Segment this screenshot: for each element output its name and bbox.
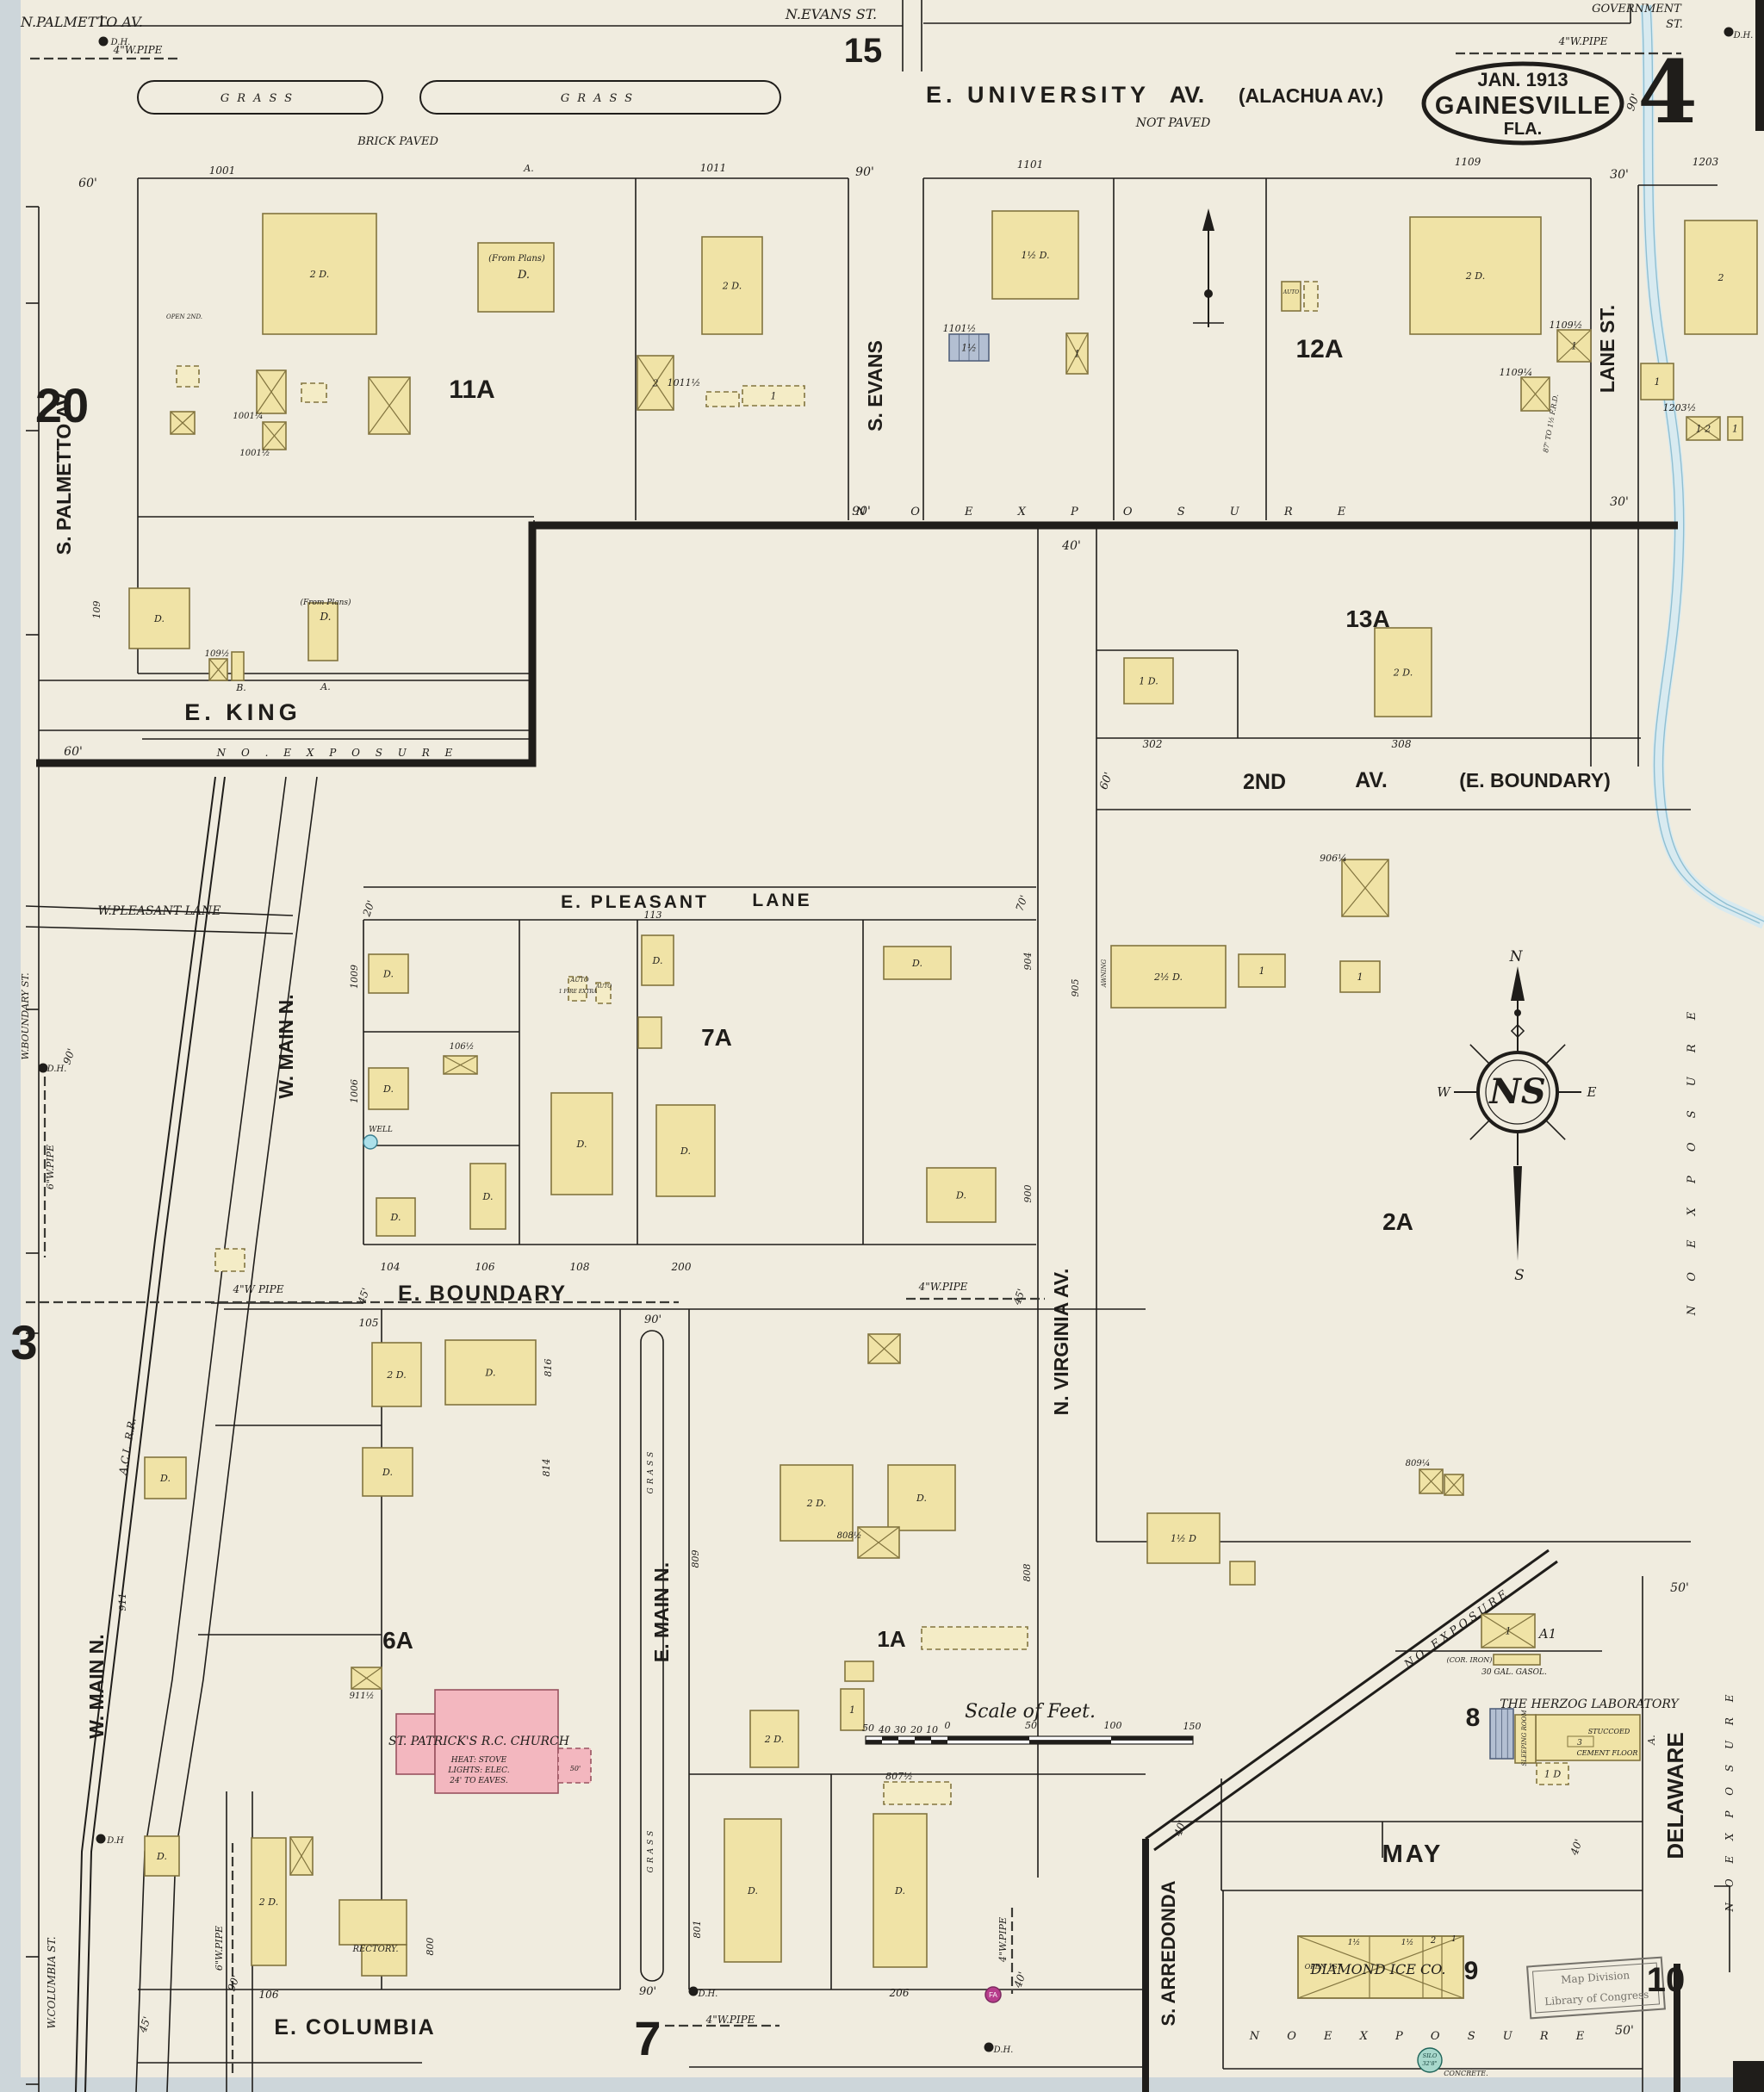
- dwelling-308: 2 D.: [1375, 628, 1432, 717]
- building-label: D.: [382, 1083, 394, 1095]
- pipe-4w-nvirginia: 4"W.PIPE: [918, 1281, 968, 1293]
- address-109: 109: [91, 601, 102, 619]
- block-6a: 6A: [382, 1627, 413, 1654]
- street-n-evans-st: N.EVANS ST.: [785, 6, 877, 22]
- note-heat-stove: HEAT: STOVE: [450, 1756, 507, 1765]
- address-1109: 1109: [1455, 156, 1481, 168]
- note-ice-1h-b: 1½: [1401, 1938, 1413, 1947]
- stable-906q: [1342, 860, 1388, 916]
- text-shape: FA: [989, 1991, 997, 1999]
- building-label: 1: [1655, 376, 1661, 388]
- note-auto-1: AUTO: [569, 977, 589, 984]
- building-label: 1 D.: [1139, 676, 1158, 687]
- address-1001h: 1001½: [239, 449, 270, 458]
- address-a-block8: A.: [1646, 1735, 1657, 1745]
- text-shape: NS: [1488, 1071, 1545, 1112]
- scale-tick-30: 30: [894, 1724, 906, 1735]
- dwelling-from-plans-1: [478, 243, 554, 312]
- building-st-patricks-church: ST. PATRICK'S R.C. CHURCH: [388, 1735, 570, 1748]
- dim-30-1: 30': [1610, 168, 1629, 182]
- street-w-main-n-upper: W. MAIN N.: [275, 994, 297, 1098]
- scale-tick-40: 40: [878, 1724, 891, 1735]
- pipe-4w-vertical: 4"W.PIPE: [997, 1917, 1009, 1963]
- pipe-4w-ecolumbia: 4"W.PIPE: [705, 2014, 755, 2026]
- note-24-to-eaves: 24' TO EAVES.: [449, 1777, 508, 1785]
- note-fire-extra: 1 FIRE EXTRA: [559, 989, 598, 995]
- outbuilding: 1: [1641, 363, 1674, 400]
- address-1101h: 1101½: [943, 323, 977, 334]
- outbuilding: 1: [1340, 961, 1380, 992]
- building-label: 1: [1506, 1626, 1512, 1637]
- note-ice-1h-a: 1½: [1348, 1938, 1360, 1947]
- dwelling-911: D.: [145, 1457, 186, 1499]
- note-no-exposure-eking: N O . E X P O S U R E: [216, 747, 459, 759]
- hydrant-dh-4: D.H.: [993, 2045, 1014, 2055]
- scale-tick-50r: 50: [1025, 1720, 1037, 1731]
- dwelling: 2 D.: [252, 1838, 286, 1965]
- building-label: D.: [747, 1885, 758, 1896]
- rect-shape: [915, 1736, 931, 1741]
- street-alachua-av: (ALACHUA AV.): [1239, 84, 1383, 107]
- dwelling-904: D.: [884, 947, 951, 979]
- address-1009: 1009: [349, 965, 360, 989]
- address-a-top: A.: [523, 163, 533, 174]
- rect-shape: [882, 1736, 898, 1741]
- adjacent-sheet-10: 10: [1647, 1961, 1686, 1999]
- dwelling-1006: D.: [369, 1068, 408, 1109]
- note-stuccoed: STUCCOED: [1588, 1728, 1630, 1735]
- shed-807h: [884, 1782, 951, 1804]
- address-200: 200: [671, 1261, 692, 1273]
- hydrant-dh-1: D.H.: [110, 38, 131, 47]
- stable: [290, 1837, 313, 1875]
- street-e-king: E. KING: [184, 699, 301, 725]
- block-2a: 2A: [1382, 1208, 1413, 1235]
- building-label: 1: [1259, 965, 1265, 977]
- note-herzog-3: 3: [1577, 1739, 1582, 1747]
- note-brick-paved: BRICK PAVED: [357, 135, 438, 148]
- sanborn-map-sheet: GAINESVILLE FLA. JAN. 1913 — Sheet 4 2 D…: [0, 0, 1764, 2092]
- hydrant-dh-6: D.H.: [47, 1065, 67, 1074]
- street-2nd-av: AV.: [1355, 768, 1388, 792]
- building-rectory: RECTORY.: [351, 1945, 398, 1954]
- note-no-exposure-12a: N O E X P O S U R E: [855, 506, 1367, 518]
- dwelling-108: D.: [551, 1093, 612, 1195]
- stable-a1: 1: [1481, 1614, 1535, 1648]
- herzog-annex: 1 D: [1537, 1763, 1568, 1785]
- street-e-university-av: AV.: [1170, 82, 1205, 108]
- circle-shape: [1204, 289, 1213, 298]
- rect-shape: [898, 1741, 915, 1745]
- stable-1203h: 1 2: [1686, 417, 1720, 440]
- building-label: D.: [911, 958, 922, 969]
- address-1011: 1011: [700, 162, 727, 174]
- street-s-evans: S. EVANS: [864, 340, 886, 431]
- shed: [232, 652, 244, 680]
- rect-shape: [947, 1736, 1029, 1741]
- rectory-main: [339, 1900, 407, 1945]
- sheet-edge-bar: [1733, 2061, 1764, 2092]
- hydrant-dh-3: D.H.: [698, 1990, 718, 1999]
- dwelling-1109: 2 D.: [1410, 217, 1541, 334]
- dwelling: 1½ D: [1147, 1513, 1220, 1563]
- address-109h: 109½: [205, 649, 230, 659]
- street-w-boundary-st: W.BOUNDARY ST.: [20, 972, 31, 1059]
- building-label: 1 D: [1544, 1769, 1561, 1780]
- adjacent-sheet-3: 3: [10, 1315, 37, 1369]
- note-grass-median-1: GRASS: [647, 1449, 655, 1494]
- scale-tick-0: 0: [945, 1720, 951, 1731]
- rect-shape: [1494, 1654, 1540, 1665]
- street-lane-st: LANE ST.: [1596, 305, 1618, 393]
- stable-911h: [351, 1667, 382, 1689]
- note-lights-elec: LIGHTS: ELEC.: [447, 1766, 509, 1775]
- note-grass-1: GRASS: [220, 92, 300, 105]
- address-808h: 808½: [837, 1531, 862, 1541]
- building-label: 1: [1732, 424, 1738, 435]
- address-900: 900: [1022, 1185, 1034, 1203]
- block-1a: 1A: [877, 1626, 905, 1652]
- street-may: MAY: [1382, 1841, 1444, 1868]
- stable: 1: [1066, 333, 1088, 374]
- stable-1001q: [257, 370, 286, 413]
- street-w-main-n-lower: W. MAIN N.: [85, 1634, 108, 1738]
- outbuilding: [845, 1661, 873, 1681]
- dwelling-302: 1 D.: [1124, 658, 1173, 704]
- pipe-6w-vertical: 6"W.PIPE: [214, 1926, 225, 1971]
- rect-shape: [1304, 282, 1318, 311]
- scale-bar: [866, 1736, 1193, 1744]
- double-hydrant-dot: [1724, 28, 1734, 37]
- note-no-exposure-right-upper: N O E X P O S U R E: [1686, 1002, 1699, 1317]
- dwelling-808: D.: [888, 1465, 955, 1530]
- double-hydrant-dot: [984, 2043, 994, 2052]
- address-906q: 906¼: [1320, 853, 1347, 864]
- street-e-boundary-paren: (E. BOUNDARY): [1459, 769, 1610, 791]
- scale-tick-50l: 50: [862, 1723, 874, 1734]
- stable-809q-b: [1444, 1474, 1463, 1495]
- dwelling-1009: D.: [369, 954, 408, 993]
- street-n-virginia-av: N. VIRGINIA AV.: [1050, 1269, 1072, 1416]
- rect-shape: [866, 1741, 882, 1745]
- dim-90-4: 90': [644, 1313, 661, 1326]
- note-well: WELL: [369, 1126, 393, 1134]
- title-city: GAINESVILLE: [1435, 92, 1611, 120]
- address-108: 108: [570, 1261, 590, 1273]
- stable-109h: [209, 659, 227, 680]
- rect-shape: [845, 1661, 873, 1681]
- dwelling: 2 D.: [750, 1710, 798, 1767]
- building-herzog-laboratory: THE HERZOG LABORATORY: [1500, 1698, 1680, 1711]
- address-808: 808: [1022, 1564, 1033, 1582]
- note-no-exposure-block9: N O E X P O S U R E: [1249, 2030, 1597, 2043]
- building-label: 1½ D: [1171, 1533, 1196, 1544]
- note-auto-2: AUTO: [595, 984, 612, 990]
- rect-shape: [478, 243, 554, 312]
- address-911h: 911½: [350, 1692, 375, 1701]
- double-hydrant-dot: [96, 1834, 106, 1844]
- label-d-from-plans-2: D.: [319, 611, 331, 623]
- hydrant-dh-5: D.H: [106, 1836, 124, 1846]
- auto-house: [1282, 282, 1301, 311]
- outbuilding: 1: [841, 1689, 864, 1730]
- building-label: 2 D.: [764, 1734, 784, 1745]
- rect-shape: [232, 652, 244, 680]
- street-e-columbia: E. COLUMBIA: [274, 2015, 435, 2039]
- building-label: 2 D.: [1465, 270, 1485, 282]
- dim-90-1: 90': [855, 165, 874, 179]
- street-w-columbia-st: W.COLUMBIA ST.: [46, 1936, 58, 2028]
- note-grass-median-2: GRASS: [647, 1828, 655, 1873]
- building-label: 2 D.: [386, 1369, 406, 1381]
- building-a1-label: A1: [1537, 1626, 1556, 1642]
- street-e-pleasant-lane: LANE: [752, 891, 811, 910]
- address-1006: 1006: [349, 1079, 360, 1103]
- outbuilding: [215, 1249, 245, 1271]
- dwelling: D.: [145, 1836, 179, 1876]
- text-shape: SILO: [1423, 2052, 1438, 2059]
- block-12a: 12A: [1295, 335, 1343, 363]
- rect-shape: [922, 1627, 1028, 1649]
- note-from-plans-1: (From Plans): [488, 254, 545, 264]
- address-905: 905: [1070, 979, 1081, 997]
- address-308: 308: [1392, 738, 1412, 750]
- fire-alarm-box: FA: [985, 1987, 1001, 2002]
- street-2nd: 2ND: [1243, 770, 1286, 794]
- building-label: 1 2: [1696, 424, 1711, 435]
- building-label: 1: [1357, 972, 1363, 983]
- address-911: 911: [117, 1593, 128, 1611]
- building-label: 2 D.: [258, 1896, 278, 1908]
- address-807h: 807½: [885, 1771, 913, 1782]
- building-label: D.: [159, 1473, 171, 1484]
- address-106h: 106½: [450, 1042, 475, 1052]
- street-government: GOVERNMENT: [1592, 3, 1682, 16]
- rect-shape: [301, 383, 326, 402]
- building-label: 2: [1717, 272, 1724, 283]
- rect-shape: [1029, 1741, 1111, 1745]
- auto-house: [1304, 282, 1318, 311]
- street-e-pleasant: E. PLEASANT: [561, 892, 709, 912]
- rect-shape: [884, 1782, 951, 1804]
- shed: 1: [1728, 417, 1742, 440]
- address-206: 206: [889, 1987, 910, 1999]
- building-label: 2 D.: [309, 269, 329, 280]
- shed: 1: [742, 386, 804, 406]
- dwelling-814: D.: [445, 1340, 536, 1405]
- rect-shape: [1230, 1561, 1255, 1585]
- adjacent-sheet-20: 20: [35, 378, 89, 432]
- building-label: D.: [153, 613, 165, 624]
- dim-50-1: 50': [1670, 1581, 1689, 1595]
- address-814: 814: [541, 1459, 552, 1477]
- stable-1109q: [1521, 377, 1550, 411]
- scale-tick-10: 10: [926, 1724, 938, 1735]
- address-113: 113: [644, 909, 662, 921]
- building-label: 2 D.: [722, 281, 742, 292]
- iron-building-1101h: 1½: [949, 334, 989, 361]
- note-cement-floor: CEMENT FLOOR: [1577, 1749, 1638, 1757]
- address-1011h: 1011½: [668, 377, 701, 388]
- stable-809q-a: [1419, 1469, 1443, 1493]
- title-date: JAN. 1913: [1477, 69, 1568, 90]
- building-label: D.: [482, 1191, 494, 1202]
- building-label: 1: [771, 391, 777, 402]
- sheet-edge-bar: [1755, 0, 1764, 131]
- label-d-from-plans-1: D.: [517, 269, 530, 282]
- stable: [171, 412, 195, 434]
- stable: [868, 1334, 900, 1363]
- rect-shape: [1111, 1736, 1193, 1741]
- note-annex-50: 50': [570, 1765, 581, 1772]
- note-open-1st: OPEN 1ST.: [1305, 1963, 1344, 1971]
- dwelling-809: 2 D.: [780, 1465, 853, 1541]
- text-shape: CONCRETE.: [1444, 2070, 1488, 2077]
- gasoline-shed: [1494, 1654, 1540, 1665]
- pipe-4w-eboundary: 4"W PIPE: [233, 1283, 284, 1295]
- building-label: 1: [849, 1704, 855, 1716]
- address-800: 800: [425, 1938, 436, 1956]
- block-13a: 13A: [1345, 605, 1389, 632]
- note-awning: AWNING: [1101, 959, 1108, 988]
- note-grass-2: GRASS: [561, 92, 640, 105]
- note-no-exposure-right-lower: N O E X P O S U R E: [1724, 1688, 1736, 1912]
- dwelling-1001: 2 D.: [263, 214, 376, 334]
- outbuilding: [177, 366, 199, 387]
- note-ice-1: 1: [1451, 1935, 1457, 1944]
- building-label: D.: [382, 969, 394, 980]
- map-canvas: 2 D.2 D.21D.1½ D.11½2 D.1211 211 D.2 D.2…: [0, 0, 1764, 2092]
- address-a-eking: A.: [320, 681, 330, 692]
- note-from-plans-2: (From Plans): [300, 598, 351, 607]
- address-302: 302: [1143, 738, 1163, 750]
- note-sleeping-room: SLEEPING ROOM: [1521, 1710, 1528, 1766]
- street-e-university: E. UNIVERSITY: [926, 82, 1150, 108]
- block-8: 8: [1466, 1704, 1481, 1732]
- compass-letter-n: N: [1509, 948, 1524, 965]
- shed: [1230, 1561, 1255, 1585]
- dim-60-2: 60': [64, 745, 83, 759]
- compass-letter-w: W: [1437, 1084, 1451, 1100]
- street-government-st: ST.: [1666, 18, 1683, 31]
- dwelling-1203: 2: [1685, 220, 1757, 334]
- building-label: D.: [390, 1212, 401, 1223]
- building-label: D.: [680, 1145, 691, 1157]
- dim-90-2: 90': [852, 505, 871, 518]
- adjacent-sheet-15: 15: [844, 32, 883, 70]
- dwelling-200: D.: [656, 1105, 715, 1196]
- dwelling-1011: 2 D.: [702, 237, 762, 334]
- building-label: 1: [1571, 341, 1577, 352]
- street-e-main-n: E. MAIN N.: [650, 1562, 673, 1662]
- dim-50-2: 50': [1615, 2024, 1634, 2038]
- dim-90-5: 90': [639, 1985, 656, 1998]
- dim-30-2: 30': [1610, 495, 1629, 509]
- rect-shape: [215, 1249, 245, 1271]
- street-delaware: DELAWARE: [1662, 1732, 1688, 1859]
- rect-shape: [177, 366, 199, 387]
- address-1101: 1101: [1017, 158, 1044, 171]
- dwelling: D.: [363, 1448, 413, 1496]
- dim-60-1: 60': [78, 177, 97, 190]
- compass-letter-s: S: [1514, 1267, 1525, 1284]
- double-hydrant-dot: [99, 37, 109, 47]
- dwelling-905: 2½ D.: [1111, 946, 1226, 1008]
- dim-40-1: 40': [1061, 539, 1081, 553]
- building-label: D.: [382, 1467, 393, 1478]
- dwelling-113: D.: [642, 935, 674, 985]
- well-circle: [363, 1135, 377, 1149]
- rect-shape: [706, 392, 739, 407]
- address-1001: 1001: [209, 165, 236, 177]
- address-809: 809: [690, 1550, 701, 1568]
- stable-808h: [858, 1527, 899, 1558]
- building-label: 2 D.: [1393, 667, 1413, 679]
- rect-shape: [931, 1741, 947, 1745]
- address-1203: 1203: [1693, 156, 1719, 168]
- shed: [706, 392, 739, 407]
- building-label: D.: [894, 1885, 905, 1896]
- dwelling-104: D.: [376, 1198, 415, 1236]
- street-w-pleasant-lane: W.PLEASANT LANE: [97, 904, 220, 918]
- building-label: 1: [1074, 349, 1080, 360]
- stable-106h: [444, 1056, 477, 1074]
- shed-1a: [922, 1627, 1028, 1649]
- outbuilding: [638, 1017, 661, 1048]
- note-cor-iron: (COR. IRON): [1447, 1656, 1493, 1664]
- address-b: B.: [235, 682, 246, 693]
- address-106-columbia: 106: [259, 1989, 279, 2001]
- block-11a: 11A: [449, 376, 494, 404]
- building-label: D.: [916, 1493, 927, 1504]
- building-label: 1½: [961, 343, 977, 354]
- address-104: 104: [381, 1261, 401, 1273]
- address-904: 904: [1022, 953, 1034, 971]
- note-auto-3: AUTO: [1283, 289, 1299, 295]
- scale-tick-20: 20: [910, 1724, 922, 1735]
- hydrant-dh-2: D.H.: [1733, 31, 1754, 40]
- rect-shape: [339, 1900, 407, 1945]
- note-not-paved: NOT PAVED: [1135, 116, 1211, 130]
- compass-letter-e: E: [1587, 1084, 1597, 1100]
- note-ice-2: 2: [1430, 1936, 1436, 1946]
- block-9: 9: [1464, 1957, 1479, 1985]
- building-label: 2 D.: [806, 1498, 826, 1509]
- address-105: 105: [359, 1317, 379, 1329]
- address-1203h: 1203½: [1663, 402, 1697, 413]
- building-label: D.: [485, 1368, 496, 1379]
- building-label: D.: [955, 1190, 966, 1201]
- pipe-4w-topright: 4"W.PIPE: [1558, 35, 1608, 47]
- building-label: D.: [652, 955, 663, 966]
- stable-1001h: [263, 422, 286, 450]
- title-state: FLA.: [1504, 120, 1542, 139]
- scale-tick-100: 100: [1104, 1720, 1122, 1731]
- building-label: 2½ D.: [1153, 972, 1183, 983]
- dwelling-1101: 1½ D.: [992, 211, 1078, 299]
- address-809q: 809¼: [1406, 1459, 1431, 1468]
- double-hydrant-dot: [689, 1987, 699, 1996]
- text-shape: 32'8": [1422, 2060, 1437, 2067]
- dwelling-801: D.: [724, 1819, 781, 1962]
- street-s-arredonda: S. ARREDONDA: [1158, 1880, 1179, 2026]
- rect-shape: [1282, 282, 1301, 311]
- pipe-6w-left: 6"W.PIPE: [45, 1145, 56, 1189]
- outbuilding: 1: [1239, 954, 1285, 987]
- address-1109q: 1109¼: [1500, 367, 1533, 378]
- building-label: D.: [156, 1851, 167, 1862]
- scale-tick-150: 150: [1183, 1721, 1202, 1732]
